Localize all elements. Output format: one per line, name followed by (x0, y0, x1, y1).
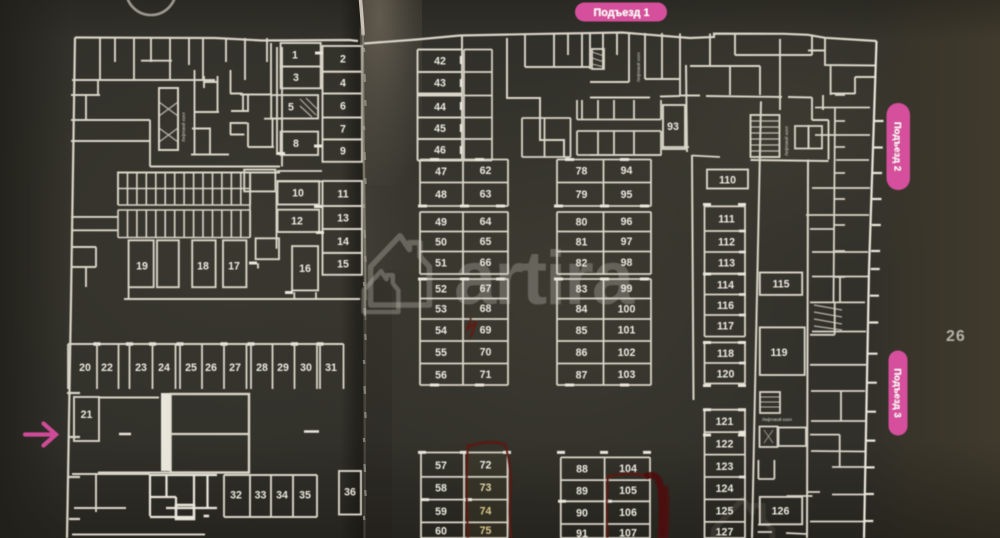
svg-text:48: 48 (435, 189, 447, 201)
svg-text:83: 83 (576, 283, 588, 295)
svg-text:73: 73 (480, 482, 492, 494)
svg-text:105: 105 (619, 485, 637, 497)
svg-text:62: 62 (480, 165, 492, 177)
svg-text:126: 126 (772, 505, 790, 517)
svg-text:98: 98 (621, 257, 633, 269)
svg-text:22: 22 (101, 362, 113, 374)
svg-text:87: 87 (576, 369, 588, 381)
svg-text:102: 102 (618, 347, 636, 359)
svg-text:72: 72 (480, 459, 492, 471)
svg-text:29: 29 (277, 362, 289, 374)
svg-text:71: 71 (480, 369, 492, 381)
svg-text:20: 20 (79, 362, 91, 374)
svg-text:23: 23 (135, 362, 147, 374)
svg-text:78: 78 (576, 165, 588, 177)
svg-text:54: 54 (435, 325, 447, 337)
svg-text:Лифтовой холл: Лифтовой холл (181, 112, 186, 142)
svg-text:24: 24 (158, 362, 170, 374)
svg-text:Подъезд 3: Подъезд 3 (892, 368, 903, 417)
svg-text:91: 91 (576, 528, 588, 538)
svg-text:3: 3 (293, 72, 299, 84)
svg-text:93: 93 (667, 121, 679, 133)
svg-text:7: 7 (340, 123, 346, 135)
svg-text:85: 85 (576, 325, 588, 337)
svg-text:36: 36 (344, 486, 356, 498)
svg-text:113: 113 (718, 257, 735, 269)
svg-text:69: 69 (480, 324, 492, 336)
svg-text:90: 90 (576, 507, 588, 519)
svg-text:70: 70 (480, 346, 492, 358)
svg-text:82: 82 (576, 257, 588, 269)
svg-text:34: 34 (276, 489, 288, 501)
svg-text:119: 119 (770, 347, 787, 359)
svg-text:59: 59 (435, 506, 447, 518)
svg-text:25: 25 (185, 362, 197, 374)
svg-text:68: 68 (480, 303, 492, 315)
svg-text:103: 103 (618, 369, 636, 381)
svg-text:2: 2 (340, 54, 346, 66)
svg-text:74: 74 (480, 505, 492, 517)
svg-text:114: 114 (717, 279, 734, 291)
svg-text:112: 112 (718, 236, 735, 248)
svg-text:26: 26 (205, 362, 217, 374)
svg-text:45: 45 (434, 123, 446, 135)
svg-text:19: 19 (136, 260, 148, 272)
svg-text:121: 121 (716, 416, 734, 428)
svg-text:97: 97 (621, 236, 633, 248)
svg-text:27: 27 (229, 362, 241, 374)
svg-text:Подъезд 2: Подъезд 2 (892, 122, 903, 171)
svg-text:8: 8 (293, 138, 299, 150)
svg-text:13: 13 (337, 212, 349, 224)
svg-text:100: 100 (618, 303, 636, 315)
svg-text:18: 18 (197, 260, 209, 272)
svg-text:123: 123 (716, 461, 734, 473)
svg-text:52: 52 (435, 283, 447, 295)
svg-text:31: 31 (325, 362, 337, 374)
svg-text:118: 118 (717, 348, 734, 360)
svg-text:99: 99 (621, 283, 633, 295)
svg-text:75: 75 (480, 525, 492, 537)
svg-text:51: 51 (435, 257, 447, 269)
svg-text:120: 120 (717, 368, 735, 380)
svg-text:89: 89 (576, 485, 588, 497)
svg-text:5: 5 (288, 102, 294, 114)
svg-text:127: 127 (716, 526, 734, 538)
svg-text:49: 49 (435, 216, 447, 228)
svg-text:14: 14 (337, 236, 349, 248)
svg-text:86: 86 (576, 347, 588, 359)
svg-text:58: 58 (435, 482, 447, 494)
svg-text:11: 11 (337, 188, 348, 200)
svg-text:122: 122 (716, 438, 734, 450)
svg-text:16: 16 (299, 263, 311, 275)
svg-text:66: 66 (480, 257, 492, 269)
svg-text:9: 9 (340, 145, 346, 157)
svg-text:115: 115 (772, 278, 789, 290)
svg-text:88: 88 (576, 463, 588, 475)
svg-text:33: 33 (255, 489, 267, 501)
svg-text:111: 111 (718, 213, 735, 225)
svg-text:107: 107 (619, 527, 637, 538)
svg-text:110: 110 (719, 174, 736, 186)
svg-text:80: 80 (576, 216, 588, 228)
svg-text:1: 1 (292, 50, 298, 62)
svg-text:21: 21 (81, 409, 93, 421)
svg-text:101: 101 (618, 324, 636, 336)
svg-text:6: 6 (340, 100, 346, 112)
svg-text:116: 116 (717, 300, 734, 312)
svg-text:26: 26 (946, 328, 966, 345)
svg-text:35: 35 (299, 489, 311, 501)
svg-text:44: 44 (434, 101, 446, 113)
svg-text:81: 81 (576, 236, 588, 248)
svg-text:64: 64 (480, 216, 492, 228)
svg-text:12: 12 (291, 216, 303, 228)
svg-text:46: 46 (434, 145, 446, 157)
svg-text:15: 15 (337, 259, 349, 271)
svg-text:60: 60 (435, 525, 447, 537)
svg-text:94: 94 (621, 165, 633, 177)
svg-text:56: 56 (435, 369, 447, 381)
svg-text:53: 53 (435, 303, 447, 315)
svg-text:50: 50 (435, 236, 447, 248)
svg-text:95: 95 (621, 189, 633, 201)
svg-text:Лифтовой холл: Лифтовой холл (762, 417, 792, 422)
svg-text:Лифтовой холл: Лифтовой холл (784, 126, 789, 156)
svg-text:10: 10 (292, 188, 304, 200)
svg-text:28: 28 (256, 362, 268, 374)
svg-text:17: 17 (228, 260, 240, 272)
svg-text:Подъезд 1: Подъезд 1 (593, 7, 649, 19)
svg-text:57: 57 (435, 460, 447, 472)
svg-text:47: 47 (435, 166, 447, 178)
svg-text:117: 117 (717, 320, 734, 332)
svg-text:124: 124 (716, 483, 734, 495)
svg-text:Лифтовой холл: Лифтовой холл (636, 52, 641, 82)
svg-text:30: 30 (300, 362, 312, 374)
svg-text:67: 67 (480, 283, 492, 295)
svg-text:43: 43 (434, 78, 446, 90)
svg-text:79: 79 (576, 189, 588, 201)
svg-text:106: 106 (619, 507, 637, 519)
svg-text:125: 125 (716, 505, 734, 517)
svg-text:32: 32 (230, 489, 242, 501)
svg-text:96: 96 (621, 216, 633, 228)
svg-text:65: 65 (480, 236, 492, 248)
svg-text:63: 63 (480, 188, 492, 200)
svg-text:55: 55 (435, 347, 447, 359)
svg-text:4: 4 (340, 77, 346, 89)
svg-text:84: 84 (576, 303, 588, 315)
svg-text:42: 42 (434, 56, 446, 68)
